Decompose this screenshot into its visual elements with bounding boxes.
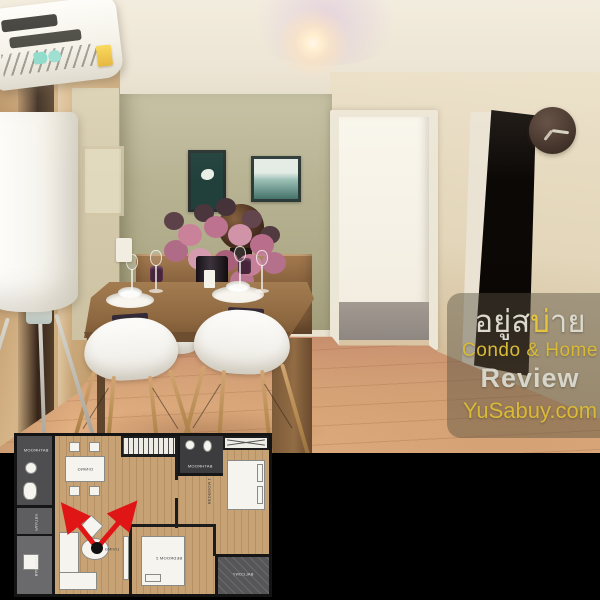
lamp-shade — [0, 112, 78, 312]
air-conditioner — [0, 0, 125, 91]
ac-warranty-sticker — [96, 44, 113, 67]
watermark-review: Review — [480, 363, 579, 393]
wine-glass — [148, 250, 164, 296]
condiment-box — [204, 270, 215, 288]
brand-thai-prefix: อยู่ส — [475, 304, 531, 339]
wine-glass — [232, 246, 248, 292]
recessed-downlight — [276, 6, 350, 80]
light-switch — [116, 238, 132, 262]
wine-glass — [254, 250, 270, 296]
wall-clock — [529, 107, 576, 154]
ac-vent — [1, 14, 58, 33]
screenshot-stage: อยู่สบ่าย Condo & Home Review YuSabuy.co… — [0, 0, 600, 600]
watermark-brand-thai: อยู่สบ่าย — [475, 305, 586, 339]
watermark-condo-home: Condo & Home — [462, 340, 598, 362]
picture-frame-portrait — [188, 150, 226, 212]
floorplan-inset: BATHROOM DINING PANTRY BALCONY LIVING BA… — [14, 433, 272, 597]
watermark-panel: อยู่สบ่าย Condo & Home Review YuSabuy.co… — [447, 293, 600, 438]
hallway-floor — [339, 340, 429, 346]
flower-pink-roses — [178, 224, 202, 246]
hallway-gray-base — [339, 302, 429, 340]
camera-position-dot — [91, 542, 103, 554]
brand-thai-smiley: บ่ — [530, 304, 550, 339]
camera-view-arrows — [17, 436, 269, 594]
watermark-site-url: YuSabuy.com — [463, 398, 597, 424]
picture-frame-landscape — [251, 156, 301, 202]
picture-frame-faint — [82, 146, 124, 216]
brand-thai-suffix: าย — [550, 304, 586, 339]
